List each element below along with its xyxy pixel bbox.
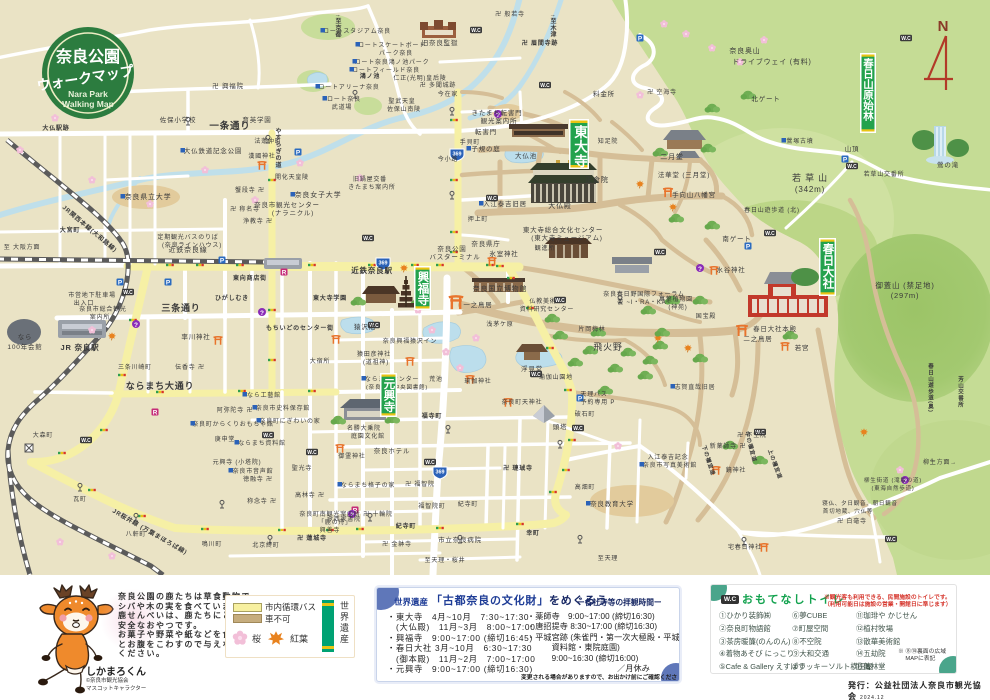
svg-text:春日山原始林: 春日山原始林	[862, 57, 874, 122]
svg-text:桜: 桜	[252, 633, 261, 644]
svg-text:興福寺: 興福寺	[417, 270, 431, 306]
svg-text:奈良公園: 奈良公園	[55, 47, 120, 66]
svg-text:Nara Park: Nara Park	[68, 89, 108, 99]
svg-text:紅葉: 紅葉	[290, 633, 308, 644]
svg-text:N: N	[938, 18, 949, 35]
svg-text:元興寺: 元興寺	[383, 378, 396, 413]
svg-text:Walking Map: Walking Map	[62, 99, 114, 109]
svg-text:東大寺: 東大寺	[572, 124, 588, 169]
svg-text:春日大社: 春日大社	[822, 242, 836, 290]
